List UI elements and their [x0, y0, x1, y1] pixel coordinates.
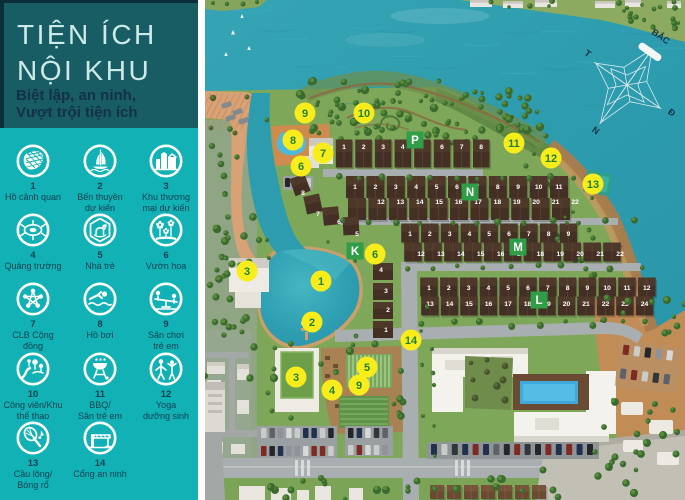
svg-text:7: 7	[527, 231, 531, 238]
svg-text:2: 2	[309, 317, 315, 329]
svg-text:1: 1	[408, 231, 412, 238]
svg-text:7: 7	[316, 211, 320, 218]
svg-text:11: 11	[623, 285, 630, 292]
svg-text:8: 8	[566, 285, 570, 292]
svg-text:17: 17	[504, 301, 512, 308]
svg-text:1: 1	[353, 184, 357, 191]
svg-text:1: 1	[427, 285, 431, 292]
svg-text:L: L	[535, 295, 542, 307]
svg-text:2: 2	[362, 144, 366, 151]
svg-text:16: 16	[497, 251, 505, 258]
svg-text:20: 20	[563, 301, 571, 308]
svg-text:10: 10	[358, 108, 370, 120]
svg-text:1: 1	[318, 276, 324, 288]
svg-text:14: 14	[405, 335, 418, 347]
svg-text:4: 4	[379, 267, 383, 274]
svg-text:14: 14	[446, 301, 454, 308]
svg-text:3: 3	[293, 372, 299, 384]
svg-text:8: 8	[496, 184, 500, 191]
svg-text:15: 15	[465, 301, 473, 308]
svg-text:5: 5	[435, 184, 439, 191]
svg-text:6: 6	[372, 249, 378, 261]
svg-text:20: 20	[532, 199, 540, 206]
svg-text:12: 12	[545, 153, 557, 165]
svg-text:12: 12	[417, 251, 425, 258]
svg-text:3: 3	[394, 184, 398, 191]
svg-text:22: 22	[571, 199, 579, 206]
svg-text:8: 8	[290, 135, 296, 147]
svg-text:10: 10	[535, 184, 543, 191]
svg-text:N: N	[466, 187, 474, 199]
svg-text:12: 12	[643, 285, 651, 292]
svg-text:3: 3	[244, 266, 250, 278]
svg-text:19: 19	[557, 251, 565, 258]
svg-text:22: 22	[616, 251, 624, 258]
svg-text:5: 5	[355, 231, 359, 238]
svg-text:4: 4	[401, 144, 405, 151]
svg-text:4: 4	[468, 231, 472, 238]
svg-text:24: 24	[641, 301, 649, 308]
svg-text:18: 18	[524, 301, 532, 308]
svg-text:14: 14	[457, 251, 465, 258]
svg-text:6: 6	[298, 161, 304, 173]
svg-text:1: 1	[342, 144, 346, 151]
svg-text:K: K	[351, 246, 360, 258]
svg-text:15: 15	[477, 251, 485, 258]
svg-text:9: 9	[567, 231, 571, 238]
svg-text:6: 6	[455, 184, 459, 191]
svg-text:9: 9	[302, 108, 308, 120]
svg-text:9: 9	[516, 184, 520, 191]
svg-text:11: 11	[508, 138, 520, 150]
svg-text:7: 7	[320, 148, 326, 160]
svg-text:5: 5	[506, 285, 510, 292]
svg-text:9: 9	[356, 380, 362, 392]
svg-text:P: P	[411, 135, 419, 147]
svg-text:15: 15	[435, 199, 443, 206]
svg-text:21: 21	[582, 301, 590, 308]
svg-text:6: 6	[526, 285, 530, 292]
svg-text:10: 10	[603, 285, 611, 292]
svg-text:13: 13	[437, 251, 445, 258]
svg-text:M: M	[513, 242, 523, 254]
svg-text:16: 16	[455, 199, 463, 206]
svg-text:2: 2	[374, 184, 378, 191]
svg-text:13: 13	[397, 199, 405, 206]
svg-text:3: 3	[467, 285, 471, 292]
svg-text:21: 21	[552, 199, 560, 206]
svg-text:5: 5	[487, 231, 491, 238]
svg-text:22: 22	[602, 301, 610, 308]
svg-text:1: 1	[384, 327, 388, 334]
svg-text:7: 7	[546, 285, 550, 292]
svg-text:18: 18	[537, 251, 545, 258]
svg-text:16: 16	[485, 301, 493, 308]
svg-text:3: 3	[448, 231, 452, 238]
svg-text:3: 3	[384, 288, 388, 295]
svg-text:18: 18	[494, 199, 502, 206]
svg-text:5: 5	[364, 362, 370, 374]
svg-text:8: 8	[547, 231, 551, 238]
svg-text:6: 6	[440, 144, 444, 151]
svg-text:4: 4	[329, 385, 336, 397]
svg-text:4: 4	[414, 184, 418, 191]
svg-text:6: 6	[507, 231, 511, 238]
svg-text:21: 21	[596, 251, 604, 258]
svg-text:13: 13	[587, 179, 599, 191]
svg-text:14: 14	[416, 199, 424, 206]
svg-text:2: 2	[447, 285, 451, 292]
svg-text:9: 9	[586, 285, 590, 292]
svg-text:3: 3	[381, 144, 385, 151]
svg-text:2: 2	[386, 307, 390, 314]
svg-text:19: 19	[513, 199, 521, 206]
svg-text:11: 11	[555, 184, 562, 191]
svg-text:8: 8	[479, 144, 483, 151]
svg-text:2: 2	[428, 231, 432, 238]
svg-text:12: 12	[377, 199, 385, 206]
svg-text:4: 4	[487, 285, 491, 292]
svg-text:7: 7	[460, 144, 464, 151]
svg-text:8: 8	[301, 190, 305, 197]
